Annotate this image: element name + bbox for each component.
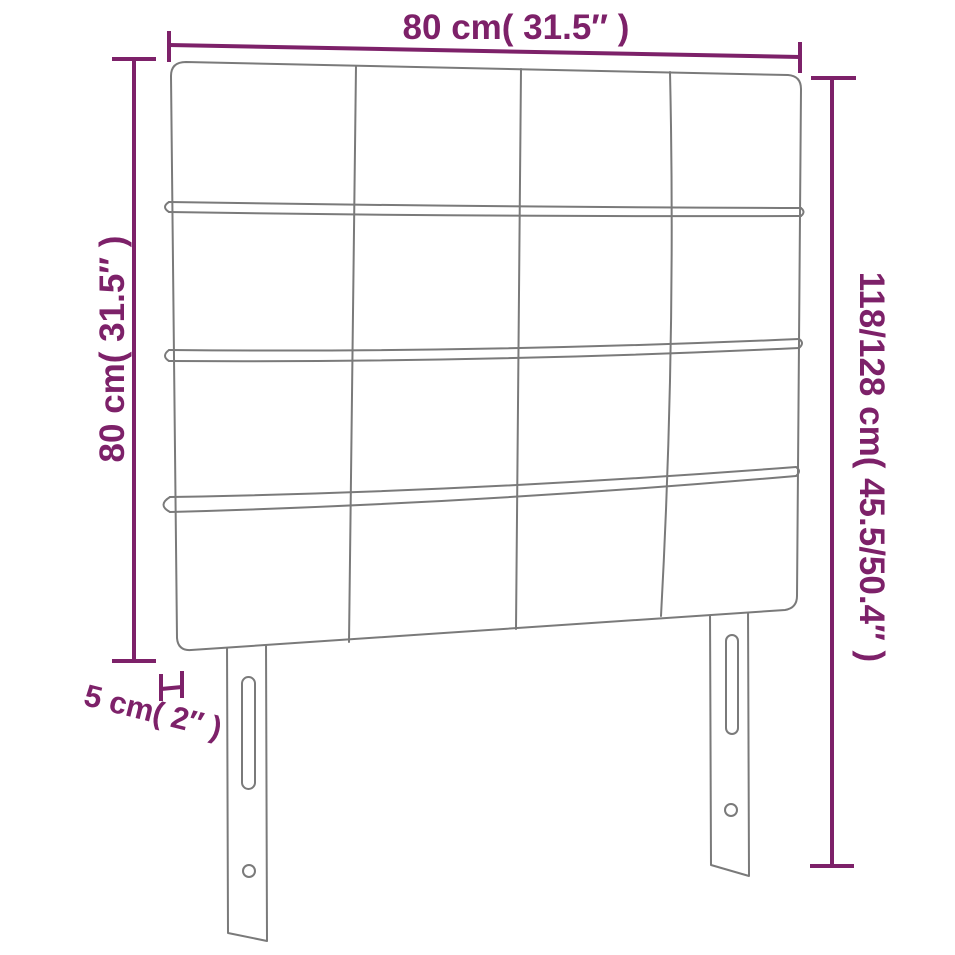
left-height-dimension-label: 80 cm( 31.5″ ) [93, 236, 133, 463]
width-dimension-label: 80 cm( 31.5″ ) [403, 8, 630, 48]
headboard-dimension-diagram: 80 cm( 31.5″ ) 80 cm( 31.5″ ) 118/128 cm… [0, 0, 955, 955]
headboard-outline [171, 62, 801, 650]
left-leg [227, 640, 267, 941]
right-leg [710, 606, 749, 876]
legs [227, 606, 749, 941]
right-height-dimension [810, 78, 856, 866]
headboard-drawing [0, 0, 955, 955]
right-height-dimension-label: 118/128 cm( 45.5/50.4″ ) [851, 272, 891, 662]
